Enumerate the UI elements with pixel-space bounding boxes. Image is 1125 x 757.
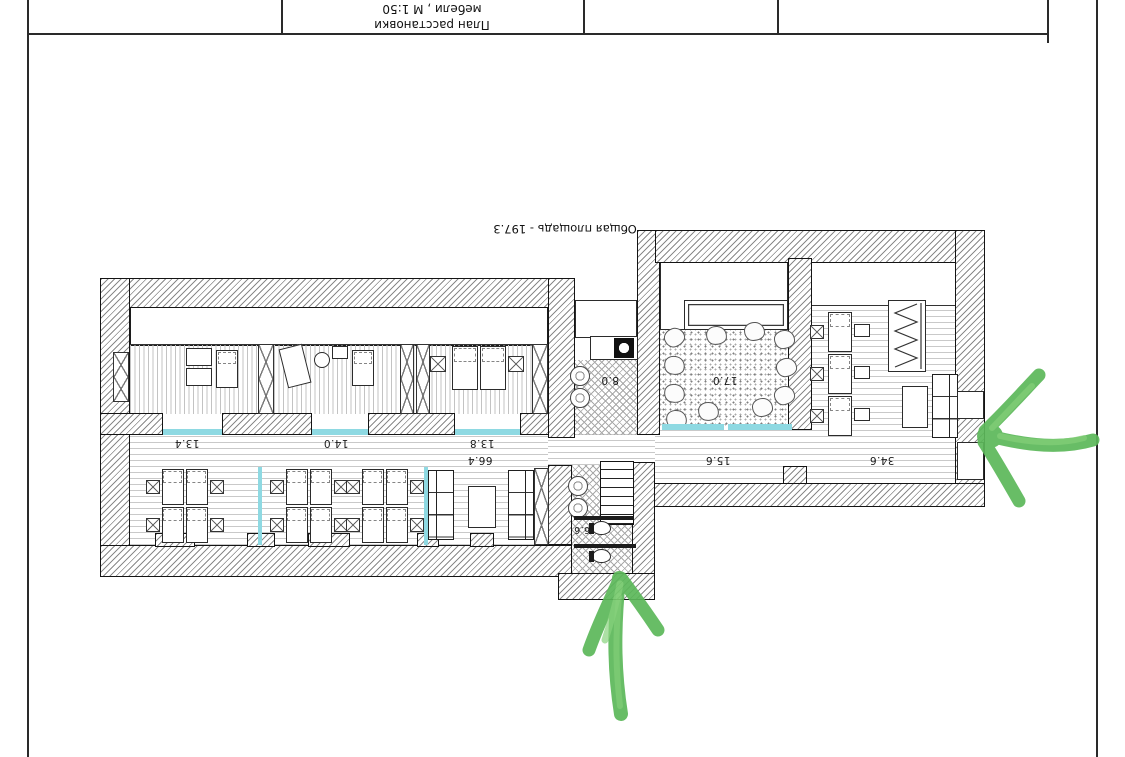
office-chair bbox=[270, 518, 284, 532]
room-area-label-lounge: 17.0 bbox=[705, 374, 745, 386]
office-chair bbox=[810, 325, 824, 339]
door-recess bbox=[957, 442, 984, 480]
office-chair bbox=[854, 366, 870, 379]
desk bbox=[186, 368, 212, 386]
desk-pad bbox=[830, 398, 850, 411]
office-chair bbox=[810, 367, 824, 381]
wall-segment bbox=[222, 413, 312, 435]
office-chair bbox=[210, 480, 224, 494]
desk-pad bbox=[387, 471, 406, 483]
window-recess bbox=[957, 391, 984, 419]
partition-post bbox=[258, 344, 274, 414]
wall-segment bbox=[100, 545, 572, 577]
room-area-label-wc: 6.6 bbox=[562, 524, 602, 535]
desk bbox=[186, 348, 212, 366]
wall-segment bbox=[470, 533, 494, 547]
desk bbox=[454, 348, 476, 362]
floor-plan-drawing bbox=[0, 0, 1125, 757]
hangers-icon bbox=[889, 301, 925, 371]
desk-pad bbox=[311, 471, 330, 483]
partition-post bbox=[416, 344, 430, 414]
wash-basin bbox=[570, 366, 590, 386]
desk-pad bbox=[187, 471, 206, 483]
office-chair bbox=[854, 324, 870, 337]
drawing-sheet: План расстановки мебели , М 1:50 Общая п… bbox=[0, 0, 1125, 757]
podium bbox=[684, 300, 788, 330]
wardrobe bbox=[888, 300, 926, 372]
partition-post bbox=[532, 344, 548, 414]
wall-segment bbox=[368, 413, 455, 435]
wall-segment bbox=[100, 413, 163, 435]
room-area-label-kitchen: 8.0 bbox=[590, 374, 630, 386]
office-chair bbox=[346, 518, 360, 532]
sofa bbox=[508, 470, 534, 540]
office-chair bbox=[146, 480, 160, 494]
door-threshold bbox=[662, 424, 724, 430]
door-threshold bbox=[455, 429, 520, 435]
office-chair bbox=[270, 480, 284, 494]
office-chair bbox=[854, 408, 870, 421]
room-area-label-open-space: 66.4 bbox=[460, 454, 500, 466]
office-chair bbox=[410, 480, 424, 494]
office-chair bbox=[146, 518, 160, 532]
room-area-label-office-3: 13.8 bbox=[462, 437, 502, 449]
desk bbox=[482, 348, 504, 362]
toilet bbox=[592, 549, 611, 563]
office-chair bbox=[810, 409, 824, 423]
wall-segment bbox=[100, 278, 572, 308]
door-threshold bbox=[312, 429, 368, 435]
wash-basin bbox=[568, 476, 588, 496]
partition-post bbox=[400, 344, 414, 414]
desk-pad bbox=[363, 471, 382, 483]
partition-post bbox=[113, 352, 129, 402]
room-area-label-office-1: 13.4 bbox=[167, 437, 207, 449]
room-area-label-office-2: 14.0 bbox=[316, 437, 356, 449]
door-threshold bbox=[424, 467, 428, 545]
cabinet-band bbox=[130, 306, 548, 346]
desk-pad bbox=[387, 509, 406, 521]
desk bbox=[354, 352, 372, 364]
desk bbox=[314, 352, 330, 368]
desk bbox=[332, 346, 348, 359]
room-area-label-workzone: 34.6 bbox=[862, 454, 902, 466]
desk-pad bbox=[163, 509, 182, 521]
wash-basin bbox=[568, 498, 588, 518]
office-chair bbox=[410, 518, 424, 532]
sofa bbox=[428, 470, 454, 540]
office-chair bbox=[346, 480, 360, 494]
desk bbox=[430, 356, 446, 372]
desk-pad bbox=[287, 509, 306, 521]
stall-partition bbox=[574, 544, 636, 548]
stall-partition bbox=[574, 516, 634, 520]
wall-segment bbox=[632, 462, 655, 577]
desk-pad bbox=[287, 471, 306, 483]
wash-basin bbox=[570, 388, 590, 408]
desk-pad bbox=[830, 314, 850, 327]
desk-pad bbox=[311, 509, 330, 521]
desk-pad bbox=[830, 356, 850, 369]
wall-segment bbox=[558, 573, 655, 600]
desk bbox=[218, 352, 236, 364]
wall-segment bbox=[783, 466, 807, 484]
wall-segment bbox=[645, 483, 985, 507]
sink bbox=[614, 338, 634, 358]
kitchen-cabinet bbox=[575, 300, 637, 338]
desk-pad bbox=[163, 471, 182, 483]
wall-segment bbox=[655, 230, 985, 263]
coffee-table bbox=[902, 386, 928, 428]
desk-pad bbox=[187, 509, 206, 521]
sofa bbox=[932, 374, 958, 438]
door-threshold bbox=[258, 467, 262, 545]
room-area-label-hall: 15.6 bbox=[698, 454, 738, 466]
wall-segment bbox=[548, 278, 575, 438]
partition-post bbox=[534, 468, 549, 545]
desk bbox=[508, 356, 524, 372]
door-threshold bbox=[163, 429, 222, 435]
door-threshold bbox=[728, 424, 792, 430]
desk-pad bbox=[363, 509, 382, 521]
toilet-tank bbox=[589, 551, 594, 562]
office-chair bbox=[210, 518, 224, 532]
coffee-table bbox=[468, 486, 496, 528]
